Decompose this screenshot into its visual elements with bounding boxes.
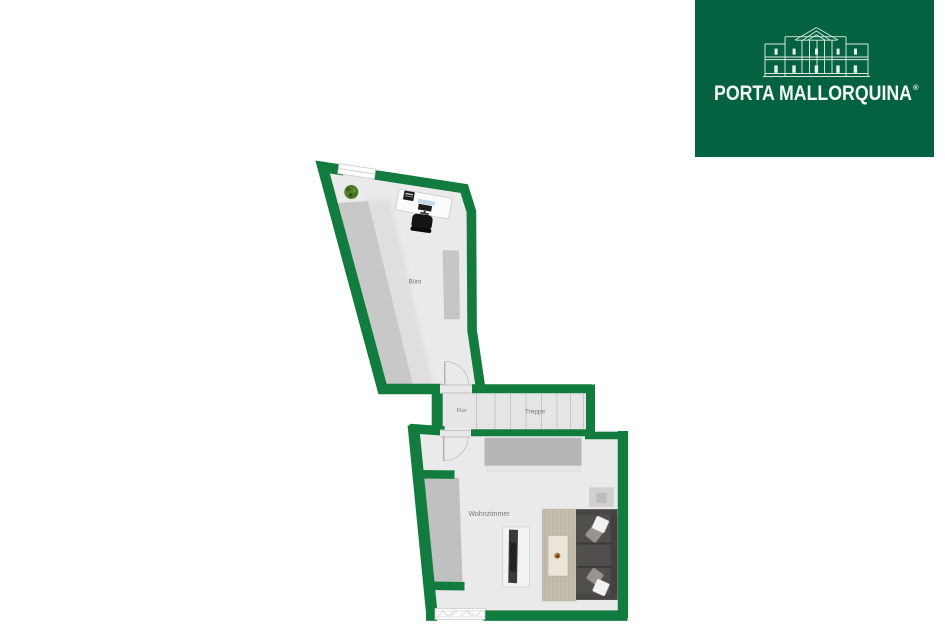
svg-text:Treppe: Treppe bbox=[525, 409, 546, 416]
svg-text:®: ® bbox=[913, 83, 919, 92]
svg-text:Wohnzimmer: Wohnzimmer bbox=[468, 511, 510, 518]
svg-text:Büro: Büro bbox=[409, 280, 422, 286]
svg-text:PORTA MALLORQUINA: PORTA MALLORQUINA bbox=[714, 82, 912, 105]
svg-text:Flur: Flur bbox=[457, 408, 467, 414]
